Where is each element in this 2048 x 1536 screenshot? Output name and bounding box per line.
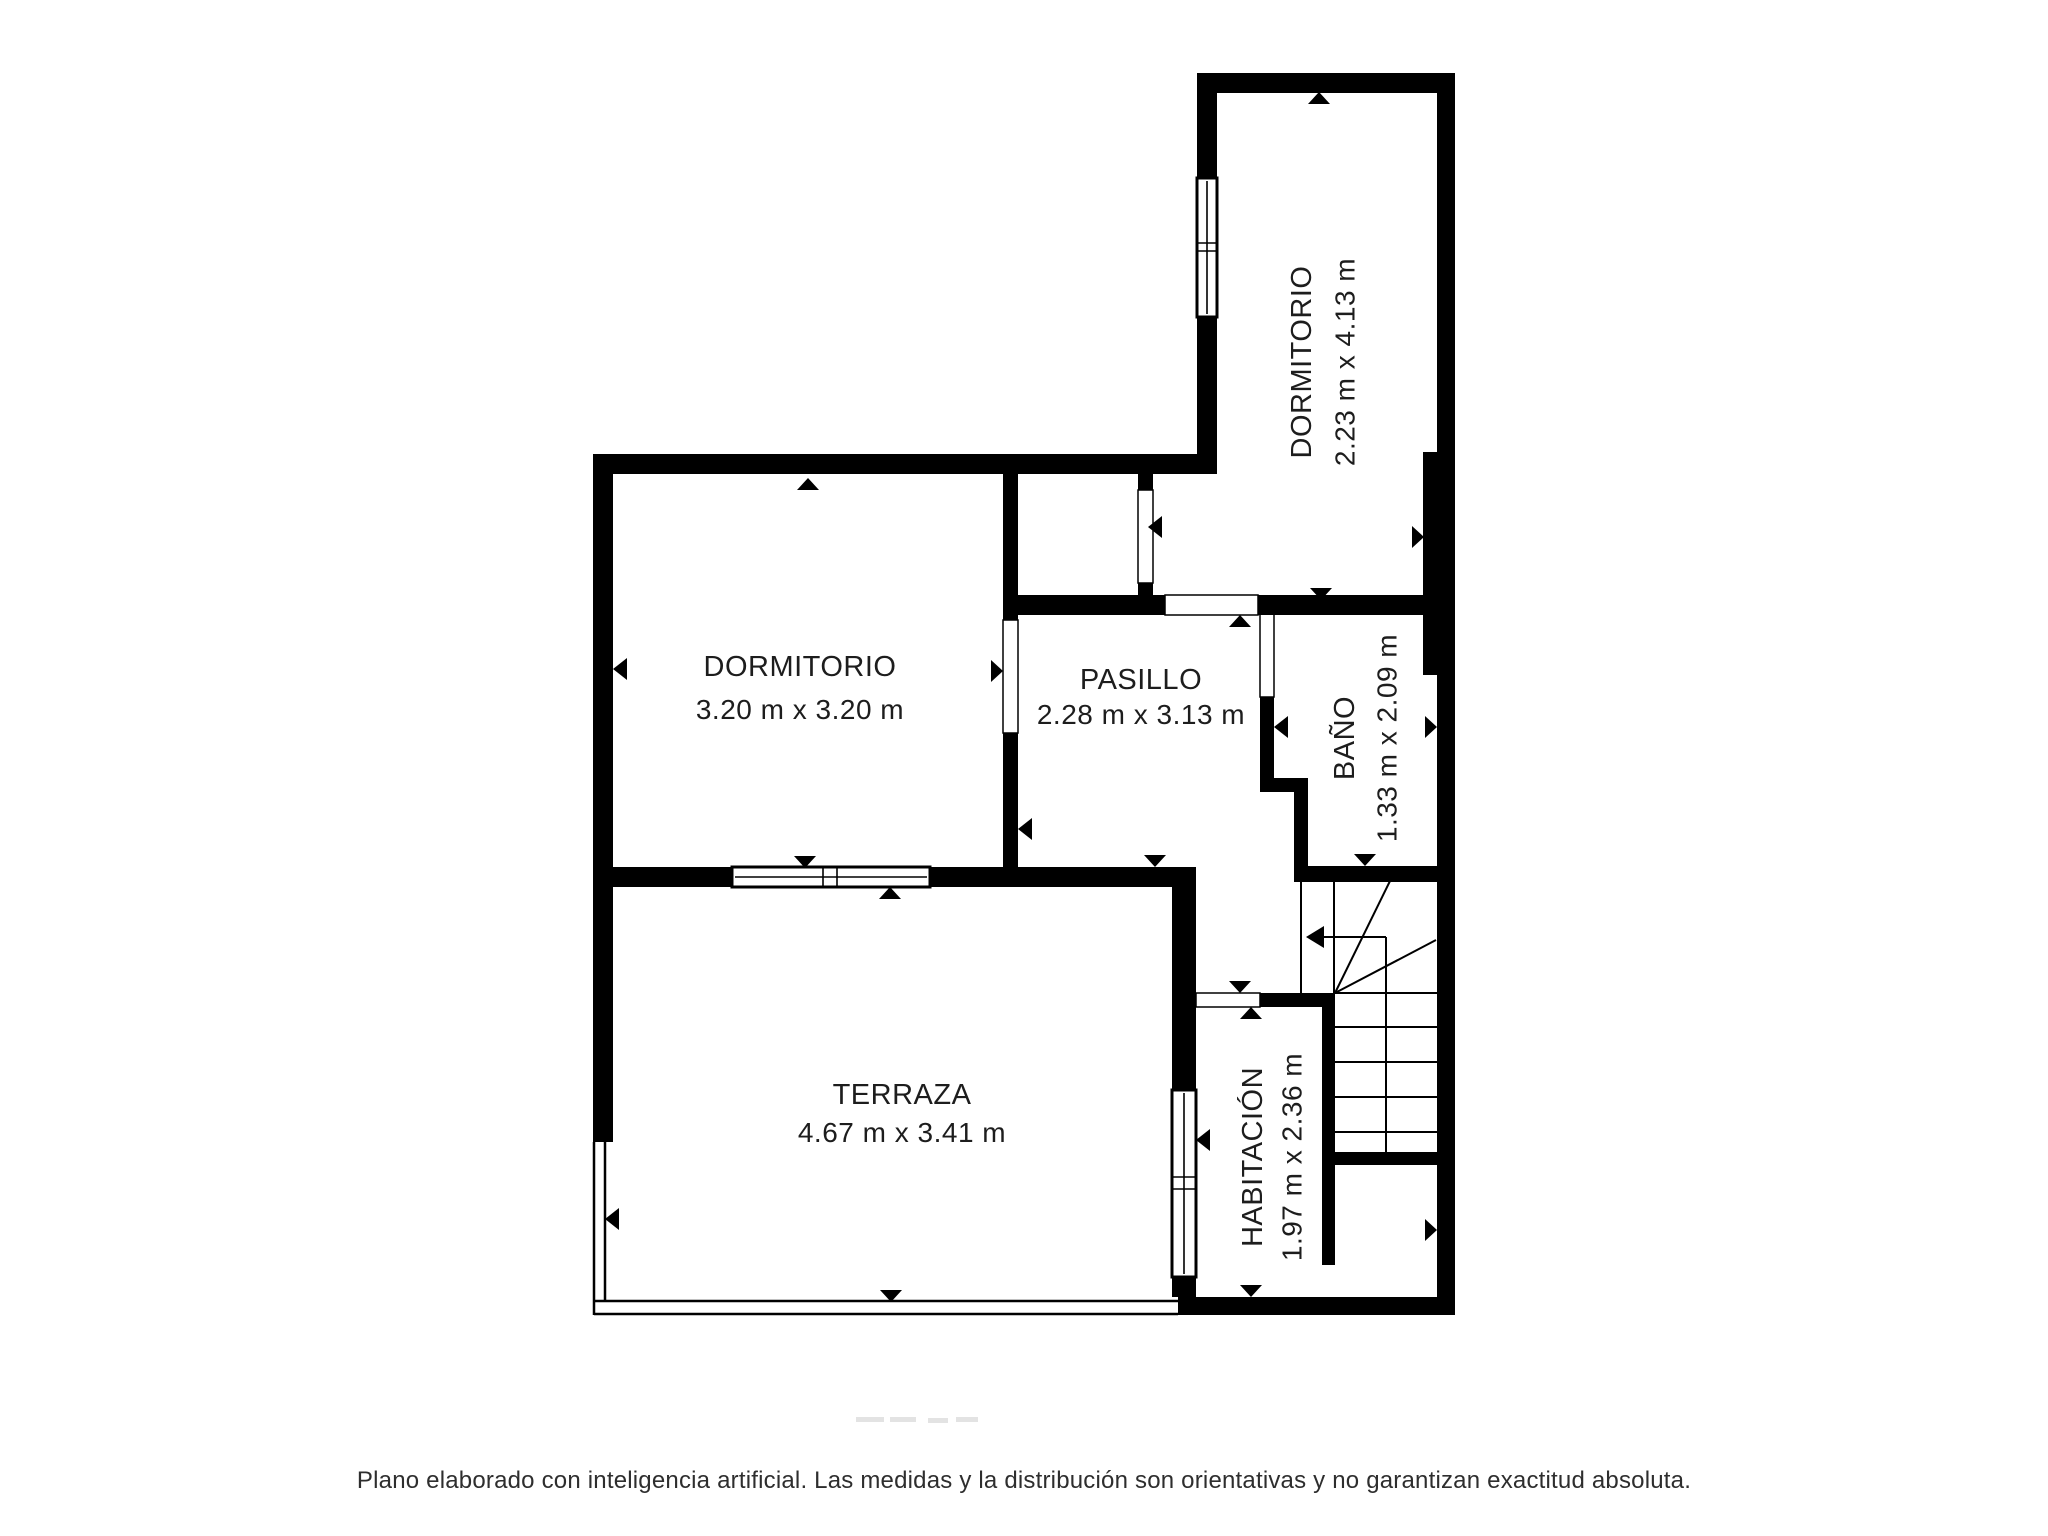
wall-segment (1260, 993, 1335, 1007)
room-label-terraza: TERRAZA (833, 1079, 972, 1111)
room-dims-dormitorio-superior: 2.23 m x 4.13 m (1330, 258, 1361, 466)
wall-segment (1322, 1152, 1437, 1165)
arrow-left-icon (605, 1208, 619, 1230)
window-habitacion (1172, 1090, 1196, 1277)
room-labels: DORMITORIO 2.23 m x 4.13 m DORMITORIO 3.… (696, 258, 1403, 1261)
room-label-bano: BAÑO (1327, 696, 1361, 780)
floor-plan-page: DORMITORIO 2.23 m x 4.13 m DORMITORIO 3.… (0, 0, 2048, 1536)
arrow-up-icon (1240, 1007, 1262, 1019)
wall-segment (1260, 697, 1274, 780)
arrow-down-icon (1229, 981, 1251, 993)
wall-segment (1197, 317, 1217, 474)
wall-segment (1018, 595, 1165, 615)
arrow-right-icon (991, 660, 1003, 682)
wall-segment (1003, 474, 1018, 620)
arrow-left-icon (1274, 716, 1288, 738)
wall-segment (593, 454, 613, 1142)
door-dormitorio-izquierdo (1003, 620, 1018, 733)
room-label-pasillo: PASILLO (1080, 664, 1202, 696)
door-armario (1138, 490, 1153, 583)
staircase (1301, 880, 1437, 1152)
wall-segment (1197, 73, 1455, 93)
faint-watermark-artifact (856, 1417, 978, 1423)
room-dims-bano: 1.33 m x 2.09 m (1372, 634, 1403, 842)
arrow-up-icon (797, 478, 819, 490)
wall-segment (1172, 1277, 1196, 1297)
arrow-left-icon (1196, 1129, 1210, 1151)
wall-segment (1423, 452, 1437, 675)
room-label-habitacion: HABITACIÓN (1236, 1067, 1269, 1247)
wall-segment (1260, 778, 1308, 792)
disclaimer-text: Plano elaborado con inteligencia artific… (0, 1467, 2048, 1495)
wall-segment (1437, 93, 1455, 1297)
wall-segment (1258, 595, 1437, 615)
arrow-right-icon (1412, 526, 1424, 548)
wall-segment (1003, 733, 1018, 867)
wall-segment (1138, 474, 1153, 490)
door-pasillo (1165, 595, 1258, 615)
window-bedroom-top (1197, 178, 1217, 317)
arrow-left-icon (1018, 818, 1032, 840)
wall-segment (1197, 73, 1217, 178)
arrow-up-icon (1308, 92, 1330, 104)
arrow-left-icon (613, 658, 627, 680)
wall-segment (1178, 1297, 1455, 1315)
wall-segment (1294, 866, 1437, 882)
stairs-direction-arrow-icon (1306, 926, 1324, 948)
arrow-left-icon (1148, 516, 1162, 538)
room-dims-terraza: 4.67 m x 3.41 m (798, 1117, 1006, 1148)
arrow-up-icon (1229, 615, 1251, 627)
window-bedroom-terrace (732, 867, 930, 887)
room-dims-pasillo: 2.28 m x 3.13 m (1037, 699, 1245, 730)
terrace-railing (594, 1142, 1178, 1315)
room-label-dormitorio-superior: DORMITORIO (1286, 266, 1318, 459)
arrow-down-icon (1354, 854, 1376, 866)
wall-segment (1294, 792, 1308, 868)
wall-segment (930, 867, 1195, 887)
arrow-down-icon (1240, 1285, 1262, 1297)
wall-segment (1172, 867, 1196, 1090)
room-dims-habitacion: 1.97 m x 2.36 m (1277, 1053, 1308, 1261)
floor-plan-drawing: DORMITORIO 2.23 m x 4.13 m DORMITORIO 3.… (0, 0, 2048, 1536)
arrow-right-icon (1425, 716, 1437, 738)
room-dims-dormitorio-izquierdo: 3.20 m x 3.20 m (696, 694, 904, 725)
door-bano (1260, 613, 1274, 697)
wall-segment (593, 454, 1217, 474)
arrow-down-icon (1144, 855, 1166, 867)
door-openings (1003, 490, 1274, 1007)
arrow-right-icon (1425, 1219, 1437, 1241)
room-label-dormitorio-izquierdo: DORMITORIO (704, 651, 897, 683)
door-habitacion (1196, 993, 1260, 1007)
wall-segment (613, 867, 732, 887)
arrow-up-icon (879, 887, 901, 899)
